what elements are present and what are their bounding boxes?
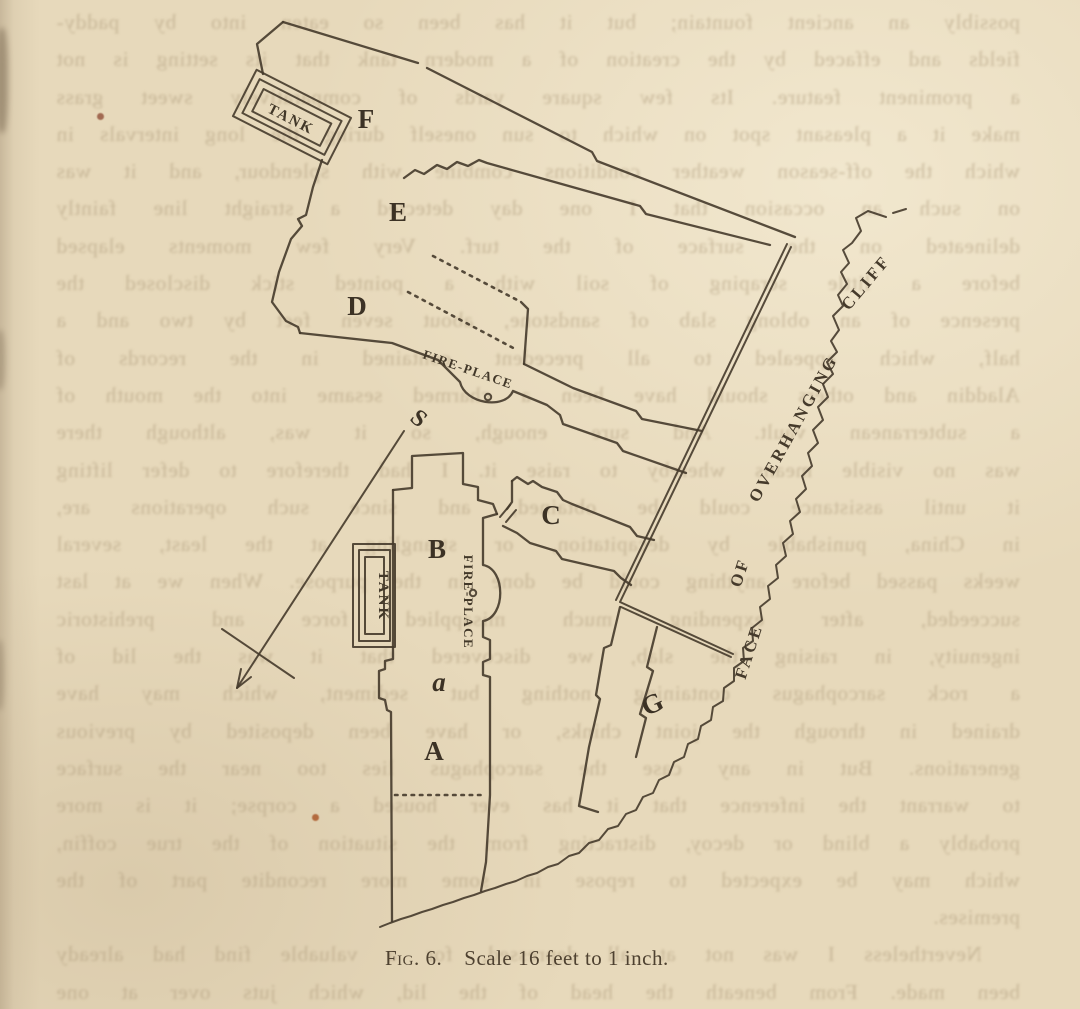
west-end-wall bbox=[272, 160, 322, 333]
label-a-upper: A bbox=[424, 736, 444, 766]
dashed-wall-2 bbox=[408, 292, 517, 350]
cliff-edge-line bbox=[893, 209, 906, 213]
label-g: G bbox=[636, 686, 668, 722]
cliff-edge-meander bbox=[380, 211, 886, 927]
label-d: D bbox=[347, 291, 367, 321]
cross-wall bbox=[521, 302, 528, 364]
figure-scale-note: Scale 16 feet to 1 inch. bbox=[464, 946, 668, 970]
chamber-b-east-wall bbox=[481, 514, 500, 891]
figure-number: Fig. 6. bbox=[385, 946, 442, 970]
doorway-hatch bbox=[500, 505, 516, 522]
chamber-g-west-wall bbox=[579, 607, 620, 812]
label-c: C bbox=[541, 500, 561, 530]
fireplace-2-label: FIRE-PLACE bbox=[461, 555, 476, 649]
chamber-b-top-wall bbox=[393, 453, 497, 514]
chamber-d-south-wall bbox=[524, 364, 702, 431]
cliff-label-face: FACE bbox=[731, 621, 767, 681]
tank-2: TANK bbox=[353, 544, 395, 647]
tank-1-label: TANK bbox=[265, 101, 317, 138]
label-s: S bbox=[405, 404, 432, 433]
chamber-c-north-wall bbox=[512, 477, 654, 540]
scanned-book-page: possibly an ancient fountain; but it has… bbox=[0, 0, 1080, 1009]
chamber-c-south-wall bbox=[503, 526, 631, 585]
label-b: B bbox=[428, 534, 446, 564]
chamber-f-west-wall bbox=[257, 22, 283, 74]
tank-1: TANK bbox=[233, 70, 351, 164]
fireplace-1-wall bbox=[300, 333, 686, 473]
figure-6-plan: TANK TANK bbox=[0, 0, 1080, 1009]
fireplace-1-label: FIRE-PLACE bbox=[421, 347, 515, 392]
cliff-face-line-outer bbox=[620, 247, 791, 654]
label-a-lower: a bbox=[432, 667, 446, 697]
survey-line-s bbox=[237, 431, 404, 688]
cliff-face-line-inner bbox=[616, 244, 787, 657]
label-e: E bbox=[389, 197, 407, 227]
tank-2-label: TANK bbox=[375, 571, 391, 621]
label-f: F bbox=[358, 104, 375, 134]
cliff-label-of: OF bbox=[726, 555, 753, 589]
dashed-wall-1 bbox=[433, 256, 521, 302]
figure-caption: Fig. 6.Scale 16 feet to 1 inch. bbox=[385, 946, 669, 971]
fireplace-1-mark bbox=[485, 394, 491, 400]
chamber-e-north-wall bbox=[404, 160, 770, 245]
cross-line bbox=[222, 629, 294, 678]
cliff-label-overhanging: OVERHANGING bbox=[745, 351, 842, 505]
